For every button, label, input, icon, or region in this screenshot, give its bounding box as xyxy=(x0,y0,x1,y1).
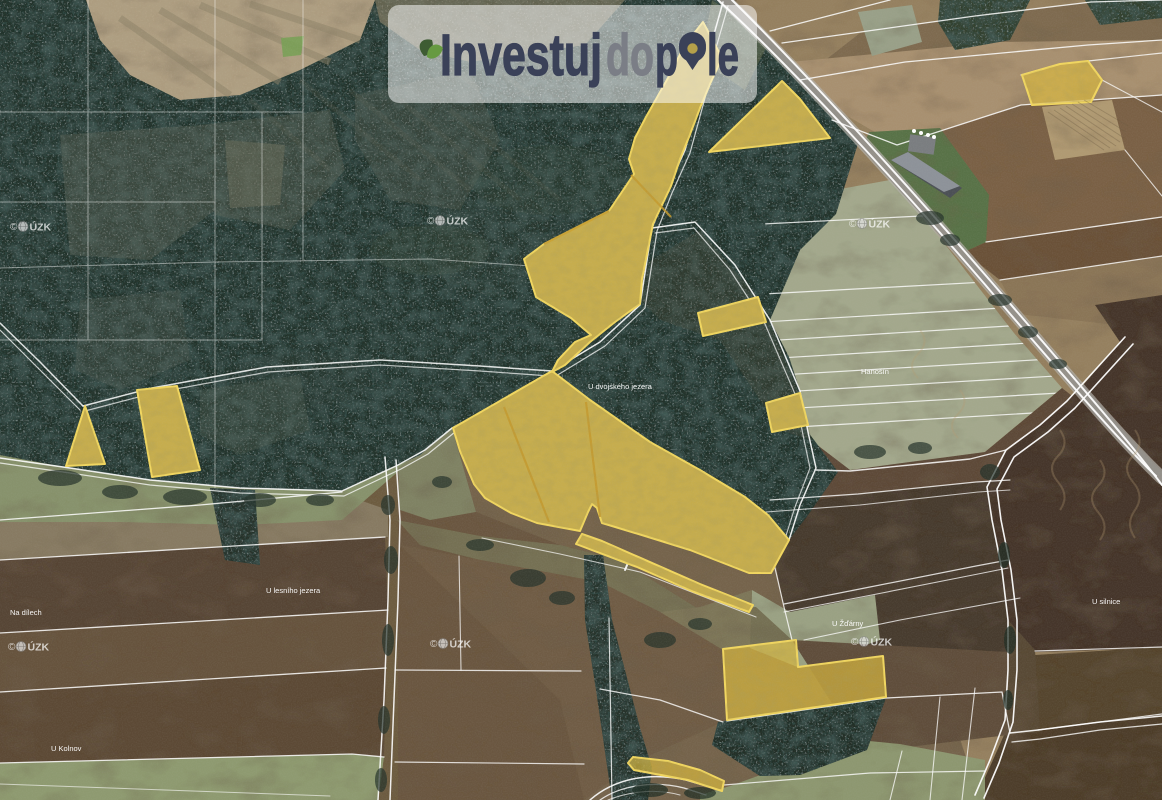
svg-text:Investuj: Investuj xyxy=(440,23,602,88)
svg-text:Na dílech: Na dílech xyxy=(10,608,42,617)
svg-text:U Žďárny: U Žďárny xyxy=(832,619,864,628)
svg-text:©: © xyxy=(10,222,18,233)
svg-text:U lesního jezera: U lesního jezera xyxy=(266,586,321,595)
svg-text:U dvojského jezera: U dvojského jezera xyxy=(588,382,653,391)
svg-text:U silnice: U silnice xyxy=(1092,597,1120,606)
svg-text:ÚZK: ÚZK xyxy=(30,221,52,234)
svg-text:le: le xyxy=(707,23,739,88)
svg-text:do: do xyxy=(606,23,654,88)
svg-text:p: p xyxy=(655,23,678,88)
svg-text:U Kolnov: U Kolnov xyxy=(51,744,82,753)
svg-text:Hanošín: Hanošín xyxy=(861,367,889,376)
